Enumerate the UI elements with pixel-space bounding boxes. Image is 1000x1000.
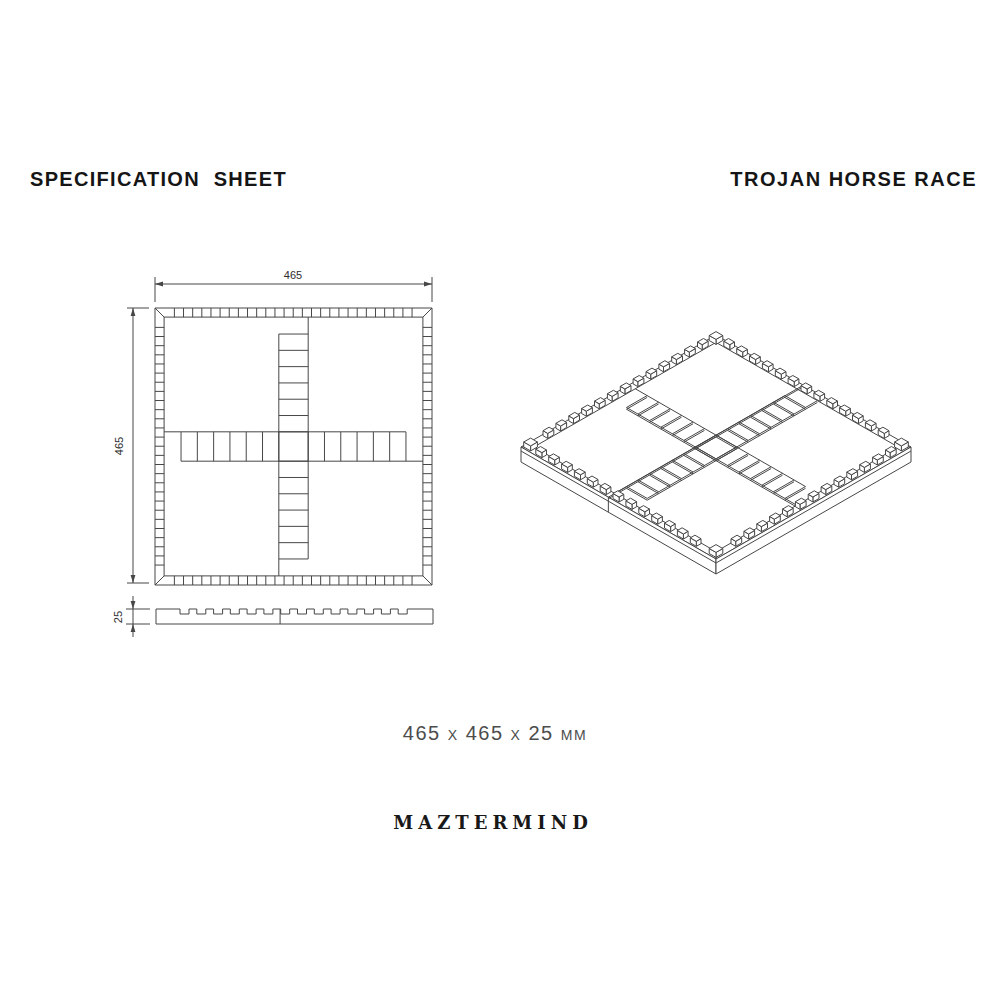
dimension-height-label: 465 — [113, 437, 125, 455]
isometric-view-drawing — [521, 332, 911, 574]
brand-logo: MAZTERMIND — [343, 812, 643, 833]
technical-drawing: 465 465 25 — [0, 0, 1000, 1000]
dimension-thickness-label: 25 — [112, 611, 124, 623]
top-view-drawing — [155, 308, 432, 585]
overall-dimensions-text: 465 x 465 x 25 mm — [295, 722, 695, 745]
dimension-width-label: 465 — [284, 269, 302, 281]
spec-sheet-page: SPECIFICATION SHEET TROJAN HORSE RACE 46… — [0, 0, 1000, 1000]
side-view-drawing — [156, 609, 433, 624]
